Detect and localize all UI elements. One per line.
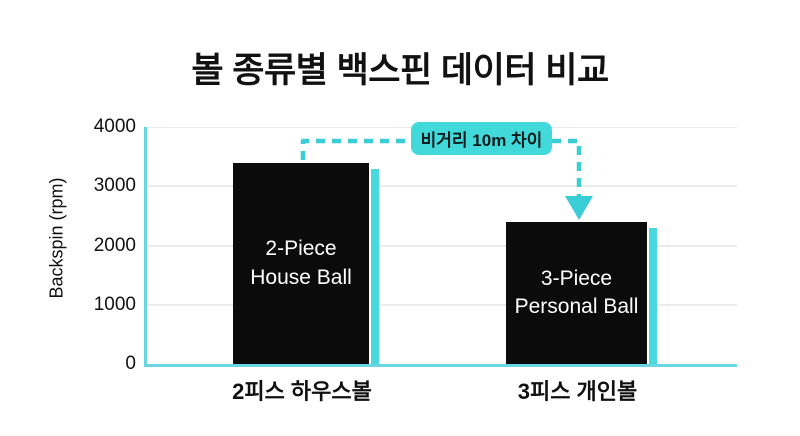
backspin-comparison-chart: 볼 종류별 백스핀 데이터 비교 Backspin (rpm) 01000200…	[0, 0, 800, 436]
y-tick-label: 2000	[94, 235, 136, 257]
annotation-badge: 비거리 10m 차이	[411, 122, 552, 155]
y-tick-label: 1000	[94, 294, 136, 316]
x-label-3piece: 3피스 개인볼	[506, 374, 649, 406]
chart-title: 볼 종류별 백스핀 데이터 비교	[0, 42, 800, 93]
bar-label: 3-Piece Personal Ball	[515, 265, 639, 322]
bar-label: 2-Piece House Ball	[250, 235, 352, 292]
y-tick-labels: 01000200030004000	[0, 127, 136, 364]
bar-3piece-personal-ball: 3-Piece Personal Ball	[506, 222, 649, 364]
bar-2piece-house-ball: 2-Piece House Ball	[233, 163, 371, 364]
x-label-2piece: 2피스 하우스볼	[232, 374, 372, 406]
plot-area: 2-Piece House Ball 3-Piece Personal Ball	[144, 127, 737, 367]
y-tick-label: 4000	[94, 116, 136, 138]
y-tick-label: 0	[125, 353, 136, 375]
y-tick-label: 3000	[94, 175, 136, 197]
